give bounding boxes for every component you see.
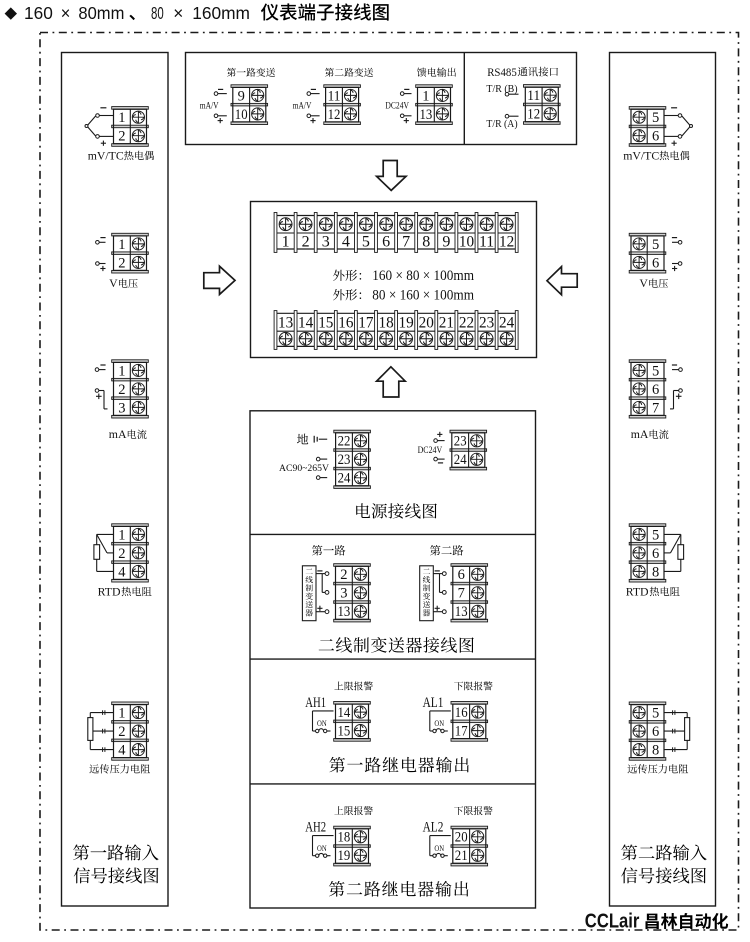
svg-text:19: 19	[338, 848, 351, 864]
svg-text:23: 23	[479, 315, 494, 332]
svg-text:V: V	[639, 276, 648, 290]
svg-text:22: 22	[338, 434, 351, 450]
svg-text:12: 12	[499, 233, 514, 250]
svg-text:3: 3	[118, 400, 125, 416]
svg-text:6: 6	[652, 382, 659, 398]
svg-text:12: 12	[328, 107, 341, 123]
svg-text:6: 6	[458, 567, 465, 583]
svg-text:18: 18	[379, 315, 394, 332]
svg-text:mV/TC: mV/TC	[88, 148, 124, 162]
svg-text:CCLair: CCLair	[585, 911, 640, 933]
svg-text:4: 4	[118, 743, 126, 759]
svg-text:24: 24	[499, 315, 514, 332]
svg-text:12: 12	[527, 107, 540, 123]
svg-text:2: 2	[118, 129, 125, 145]
svg-text:18: 18	[338, 830, 351, 846]
svg-text:6: 6	[652, 255, 659, 271]
svg-text:20: 20	[419, 315, 434, 332]
svg-text:9: 9	[442, 233, 450, 250]
svg-text:ON: ON	[434, 718, 444, 728]
svg-text:1: 1	[118, 527, 125, 543]
svg-text:7: 7	[402, 233, 410, 250]
svg-text:23: 23	[338, 452, 351, 468]
svg-text:14: 14	[338, 705, 351, 721]
svg-text:8: 8	[652, 743, 659, 759]
svg-text:1: 1	[118, 237, 125, 253]
svg-text:11: 11	[479, 233, 494, 250]
svg-text:24: 24	[338, 471, 351, 487]
svg-text:7: 7	[652, 400, 659, 416]
svg-text:6: 6	[652, 546, 659, 562]
svg-text:21: 21	[439, 315, 454, 332]
svg-text:13: 13	[278, 315, 293, 332]
svg-text:7: 7	[458, 586, 465, 602]
svg-text:×: ×	[173, 3, 183, 23]
svg-text:80 × 160 × 100mm: 80 × 160 × 100mm	[372, 287, 474, 303]
svg-text:20: 20	[455, 830, 468, 846]
svg-text:11: 11	[527, 88, 540, 104]
svg-text:15: 15	[318, 315, 333, 332]
svg-text:8: 8	[652, 564, 659, 580]
svg-text:V: V	[109, 276, 118, 290]
svg-text:5: 5	[652, 363, 659, 379]
svg-text:2: 2	[118, 724, 125, 740]
svg-text:13: 13	[338, 604, 351, 620]
svg-text:AL2: AL2	[423, 820, 444, 836]
svg-text:10: 10	[459, 233, 474, 250]
svg-text:ON: ON	[317, 718, 327, 728]
svg-text:5: 5	[652, 706, 659, 722]
svg-text:AH2: AH2	[305, 820, 326, 836]
svg-text:14: 14	[298, 315, 313, 332]
svg-text:16: 16	[338, 315, 353, 332]
svg-text:mV/TC: mV/TC	[623, 148, 659, 162]
svg-text:16: 16	[455, 705, 468, 721]
svg-text:24: 24	[454, 452, 467, 468]
svg-text:T/R (B): T/R (B)	[486, 84, 518, 95]
svg-text:23: 23	[454, 434, 467, 450]
svg-text:19: 19	[399, 315, 414, 332]
svg-text:1: 1	[118, 706, 125, 722]
svg-text:5: 5	[652, 237, 659, 253]
svg-text:17: 17	[358, 315, 373, 332]
svg-text:160 × 80 × 100mm: 160 × 80 × 100mm	[372, 268, 474, 284]
svg-text:mA: mA	[109, 427, 127, 441]
svg-text:22: 22	[459, 315, 474, 332]
svg-text:ON: ON	[317, 843, 327, 853]
svg-text:1: 1	[118, 363, 125, 379]
svg-text:10: 10	[235, 107, 248, 123]
svg-text:6: 6	[652, 129, 659, 145]
svg-text:2: 2	[118, 546, 125, 562]
svg-text:11: 11	[328, 88, 341, 104]
svg-text:T/R (A): T/R (A)	[486, 119, 518, 130]
svg-text:17: 17	[455, 724, 468, 740]
svg-text:6: 6	[382, 233, 390, 250]
svg-text:4: 4	[342, 233, 350, 250]
svg-text:2: 2	[118, 255, 125, 271]
svg-text:4: 4	[118, 564, 126, 580]
svg-text:AC90~265V: AC90~265V	[279, 464, 329, 474]
svg-text:5: 5	[362, 233, 370, 250]
svg-text:5: 5	[652, 527, 659, 543]
svg-text:160: 160	[24, 3, 53, 23]
svg-text:6: 6	[652, 724, 659, 740]
svg-text:2: 2	[118, 382, 125, 398]
svg-text:15: 15	[338, 724, 351, 740]
svg-text:RS485: RS485	[487, 65, 517, 79]
svg-text:×: ×	[61, 3, 71, 23]
svg-text:8: 8	[422, 233, 430, 250]
svg-text:2: 2	[340, 567, 347, 583]
svg-text:1: 1	[118, 110, 125, 126]
svg-text:mA/V: mA/V	[200, 102, 219, 112]
svg-text:RTD: RTD	[98, 584, 121, 598]
svg-text:AH1: AH1	[305, 695, 326, 711]
svg-text:2: 2	[302, 233, 310, 250]
svg-text:160mm: 160mm	[192, 3, 250, 23]
svg-text:13: 13	[420, 107, 433, 123]
svg-text:DC24V: DC24V	[385, 102, 409, 112]
svg-text:RTD: RTD	[626, 584, 649, 598]
svg-text:ON: ON	[434, 843, 444, 853]
svg-text:80: 80	[151, 3, 164, 23]
svg-text:AL1: AL1	[423, 695, 444, 711]
svg-text:3: 3	[340, 586, 347, 602]
svg-text:mA: mA	[631, 427, 649, 441]
svg-text:80mm: 80mm	[78, 3, 124, 23]
svg-text:mA/V: mA/V	[293, 102, 312, 112]
svg-text:21: 21	[455, 848, 468, 864]
svg-text:13: 13	[455, 604, 468, 620]
svg-text:1: 1	[282, 233, 290, 250]
svg-text:1: 1	[422, 88, 429, 104]
svg-text:DC24V: DC24V	[418, 446, 443, 456]
svg-text:9: 9	[238, 88, 245, 104]
svg-text:3: 3	[322, 233, 330, 250]
svg-text:5: 5	[652, 110, 659, 126]
